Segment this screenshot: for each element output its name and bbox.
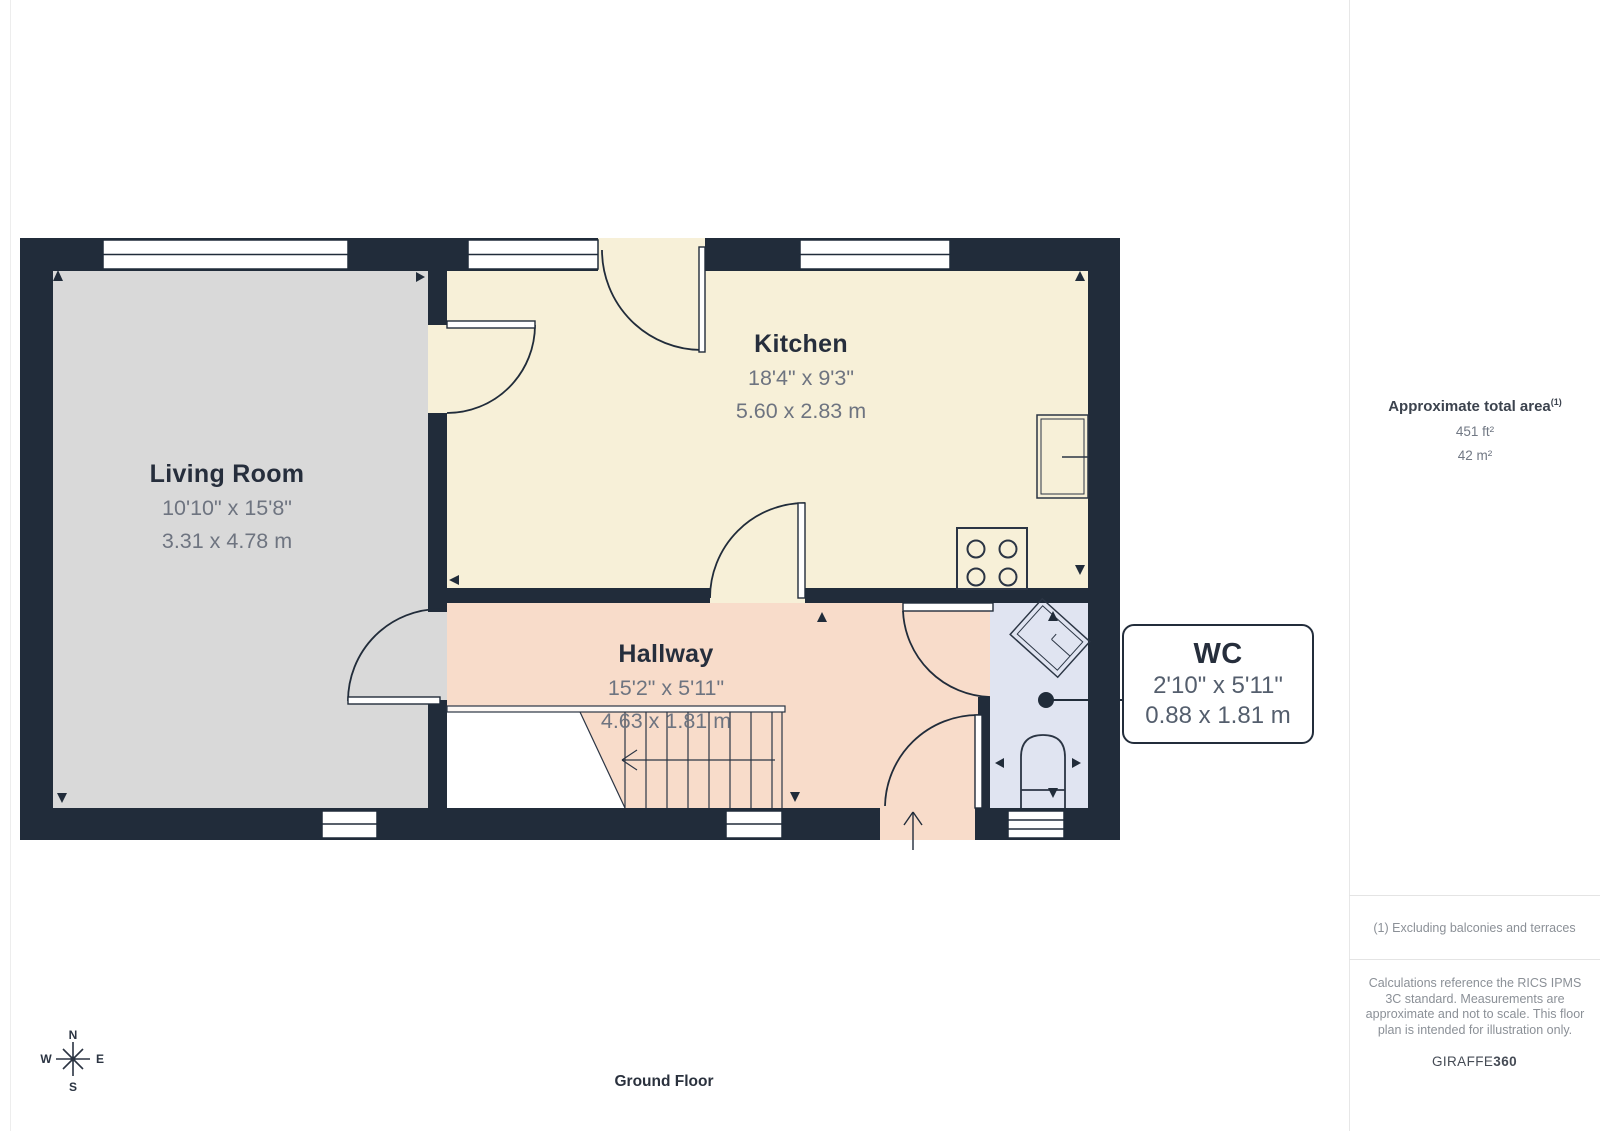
total-area-m: 42 m² [1350, 448, 1600, 463]
living-room-floor [53, 271, 428, 808]
bottom-entrance-opening [880, 808, 975, 840]
floorplan-page: N S W E Living Room 10'10" x 15'8" 3.31 … [0, 0, 1600, 1131]
total-area-ft: 451 ft² [1350, 424, 1600, 439]
floor-title: Ground Floor [564, 1073, 764, 1091]
compass-north: N [69, 1028, 78, 1042]
window [1008, 811, 1064, 838]
living-hallway-doorway [428, 612, 447, 700]
kitchen-hallway-doorway [710, 588, 805, 603]
brand-logo: GIRAFFE360 [1349, 1054, 1600, 1069]
sidebar-divider [1349, 0, 1350, 1131]
footnote-block: (1) Excluding balconies and terraces [1349, 895, 1600, 960]
room-dims-metric: 0.88 x 1.81 m [1145, 701, 1290, 731]
disclaimer-text: Calculations reference the RICS IPMS 3C … [1360, 976, 1590, 1038]
compass-south: S [69, 1080, 77, 1094]
room-dims-imperial: 2'10" x 5'11" [1153, 671, 1283, 701]
hob [957, 528, 1027, 589]
room-name: WC [1194, 637, 1243, 671]
total-area-block: Approximate total area(1) 451 ft² 42 m² [1350, 397, 1600, 463]
total-area-title-text: Approximate total area [1388, 398, 1551, 415]
compass-west: W [40, 1052, 52, 1066]
floor-plan-drawing: N S W E [0, 0, 1600, 1131]
kitchen-unit [1037, 415, 1088, 498]
stair-stringer [447, 706, 785, 712]
total-area-superscript: (1) [1551, 397, 1562, 407]
brand-bold: 360 [1493, 1054, 1517, 1069]
total-area-title: Approximate total area(1) [1350, 397, 1600, 415]
compass-east: E [96, 1052, 104, 1066]
living-kitchen-doorway [428, 325, 447, 413]
top-entrance-opening [598, 238, 705, 271]
compass-icon [56, 1042, 90, 1076]
footnote-text: (1) Excluding balconies and terraces [1355, 921, 1595, 935]
wc-callout: WC 2'10" x 5'11" 0.88 x 1.81 m [1122, 624, 1314, 744]
brand-regular: GIRAFFE [1432, 1054, 1493, 1069]
